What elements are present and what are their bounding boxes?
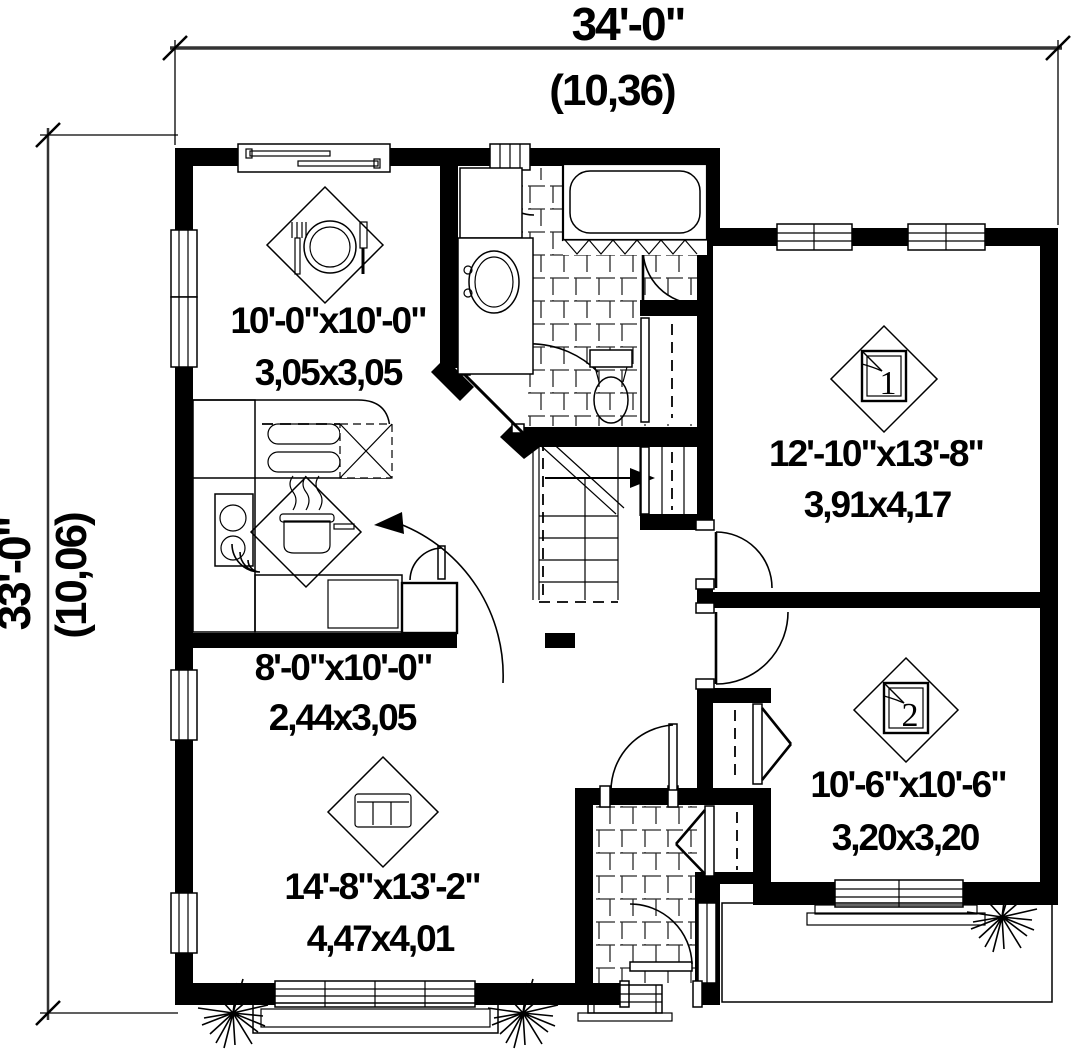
bedroom2-number: 2 [902,697,919,734]
wall-linen-closet-top [640,300,697,316]
bathroom-top-window [490,144,530,170]
kitchen-size-imperial: 8'-0"x10'-0" [255,647,432,688]
dining-top-window [238,144,390,172]
bedroom1-window-b [908,224,985,250]
wall-entry-left [575,788,593,985]
entry-sidelight-window [698,903,716,983]
living-size-imperial: 14'-8"x13'-2" [284,866,480,907]
bathroom-sink [458,238,533,374]
vanity-cabinet [460,168,522,238]
wall-hall-east-upper [697,246,713,530]
top-dimension-imperial: 34'-0" [572,0,685,50]
wall-hall-east-lower [697,688,713,791]
bedroom1-window-a [777,224,852,250]
wall-bathroom-left [440,166,458,368]
corner-cabinet [340,424,392,478]
refrigerator [402,583,457,633]
bedroom2-size-metric: 3,20x3,20 [832,817,980,858]
left-dimension-metric: (10,06) [47,513,96,639]
wall-linen-closet-bottom [640,514,697,530]
wall-entry-top [593,788,771,805]
wall-kitchen-living [193,633,457,648]
kitchen-size-metric: 2,44x3,05 [269,697,417,738]
wall-closet-top [713,688,771,703]
entry-tile-floor [593,805,697,983]
linen-closet-1 [641,316,697,424]
bathtub [563,164,707,255]
living-left-window [171,893,197,953]
bedroom1-size-imperial: 12'-10"x13'-8" [769,433,983,474]
floor-plan-canvas: 10'-0"x10'-0" 3,05x3,05 8'-0"x10'-0" 2,4… [0,0,1080,1051]
wall-bedroom-divider [713,592,1040,608]
top-dimension-metric: (10,36) [549,66,675,115]
dining-size-metric: 3,05x3,05 [255,352,403,393]
bedroom1-size-metric: 3,91x4,17 [804,484,951,525]
kitchen-left-window [171,670,197,740]
dining-left-window [171,230,197,367]
left-dimension-imperial: 33'-0" [0,518,40,631]
living-size-metric: 4,47x4,01 [307,918,455,959]
floor-plan: 10'-0"x10'-0" 3,05x3,05 8'-0"x10'-0" 2,4… [0,0,1080,1051]
bedroom2-size-imperial: 10'-6"x10'-6" [810,764,1006,805]
wall-exterior-right [1040,228,1058,905]
wall-kitchen-living-stub [545,633,575,648]
wall-exterior-top-right [700,228,1058,246]
dining-size-imperial: 10'-0"x10'-0" [230,300,426,341]
wall-closet-right [753,805,771,876]
bedroom1-number: 1 [880,365,897,402]
